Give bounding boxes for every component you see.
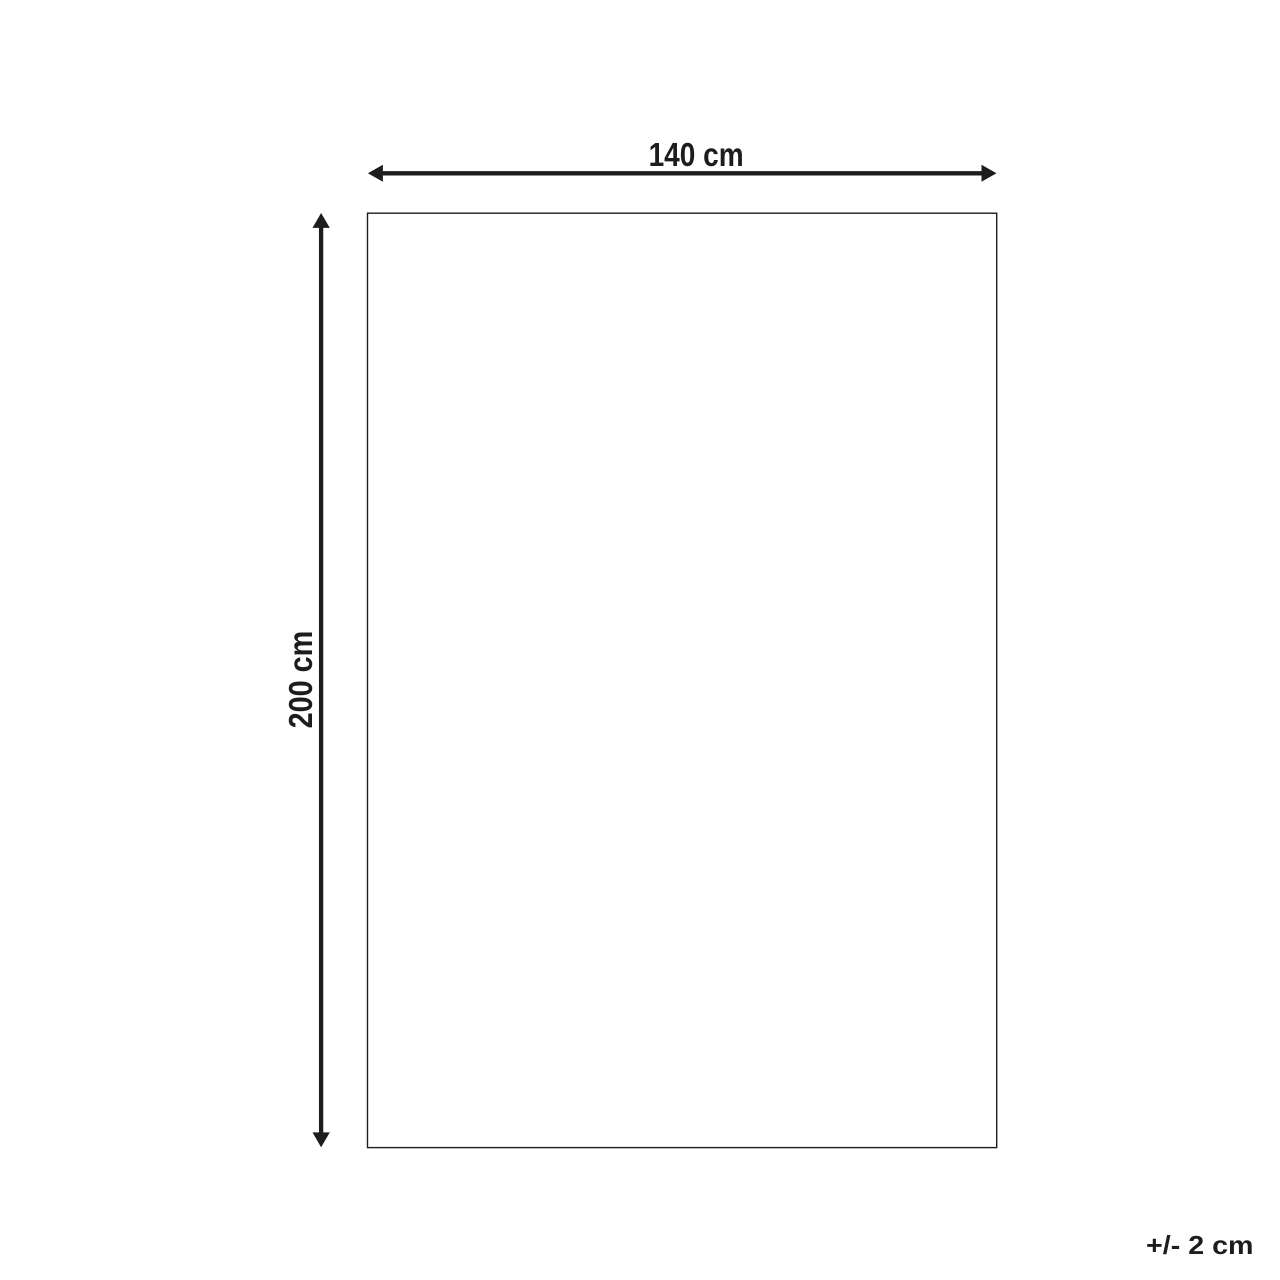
- svg-text:+/- 2 cm: +/- 2 cm: [1146, 1232, 1254, 1260]
- svg-text:140 cm: 140 cm: [649, 137, 744, 174]
- svg-text:200 cm: 200 cm: [283, 631, 320, 729]
